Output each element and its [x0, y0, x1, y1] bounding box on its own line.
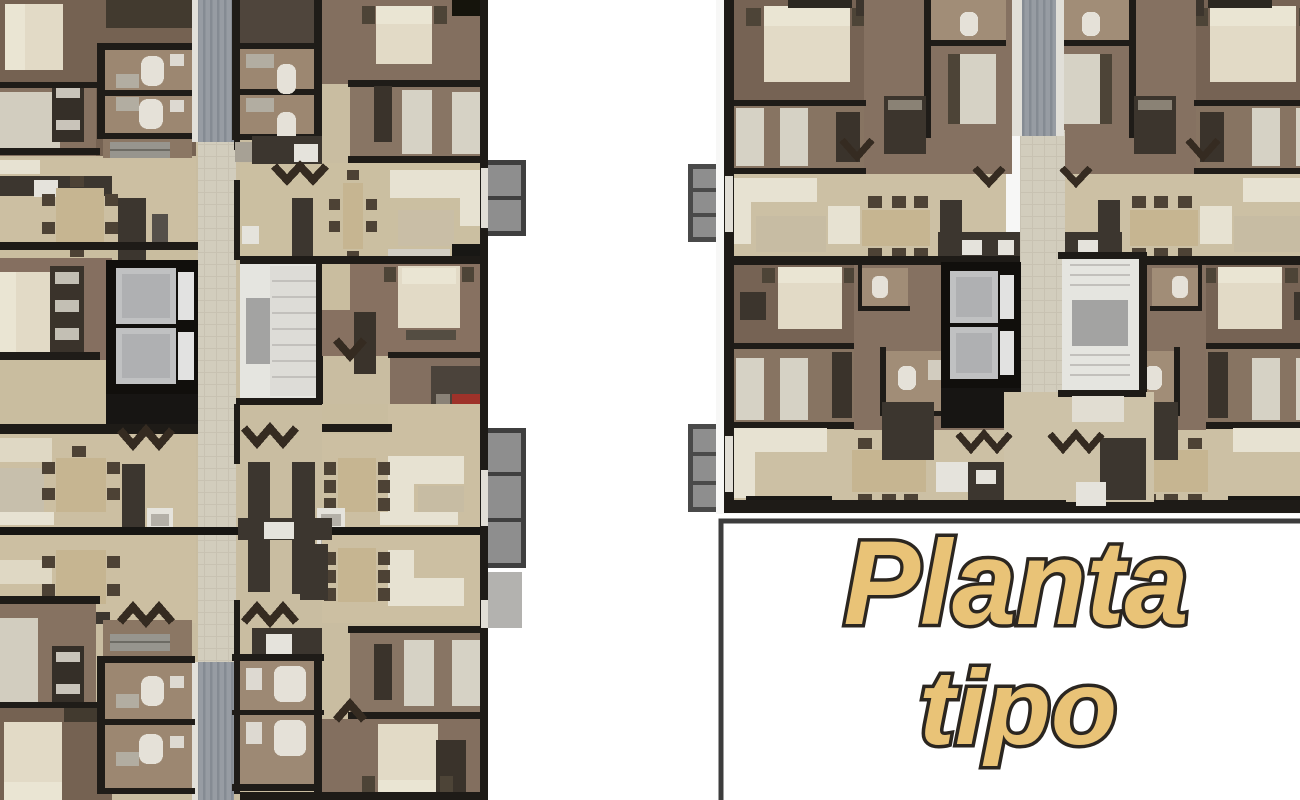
- svg-text:Planta: Planta: [844, 516, 1189, 650]
- svg-text:tipo: tipo: [919, 649, 1117, 767]
